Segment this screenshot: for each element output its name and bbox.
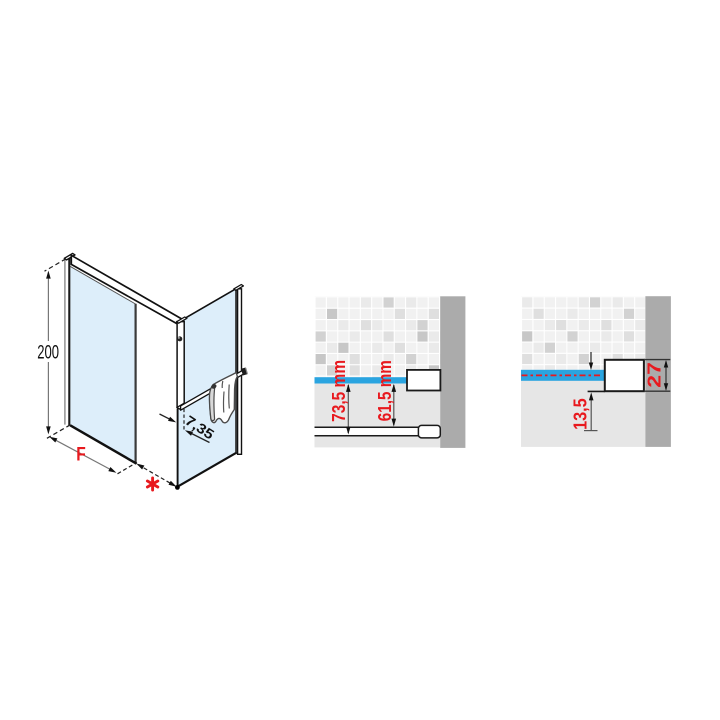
svg-text:61,5 mm: 61,5 mm [375, 360, 395, 421]
svg-text:200: 200 [37, 343, 59, 364]
svg-text:F: F [76, 445, 86, 466]
svg-text:73,5 mm: 73,5 mm [329, 360, 349, 422]
svg-text:13,5: 13,5 [571, 398, 591, 430]
svg-text:27: 27 [644, 362, 664, 388]
